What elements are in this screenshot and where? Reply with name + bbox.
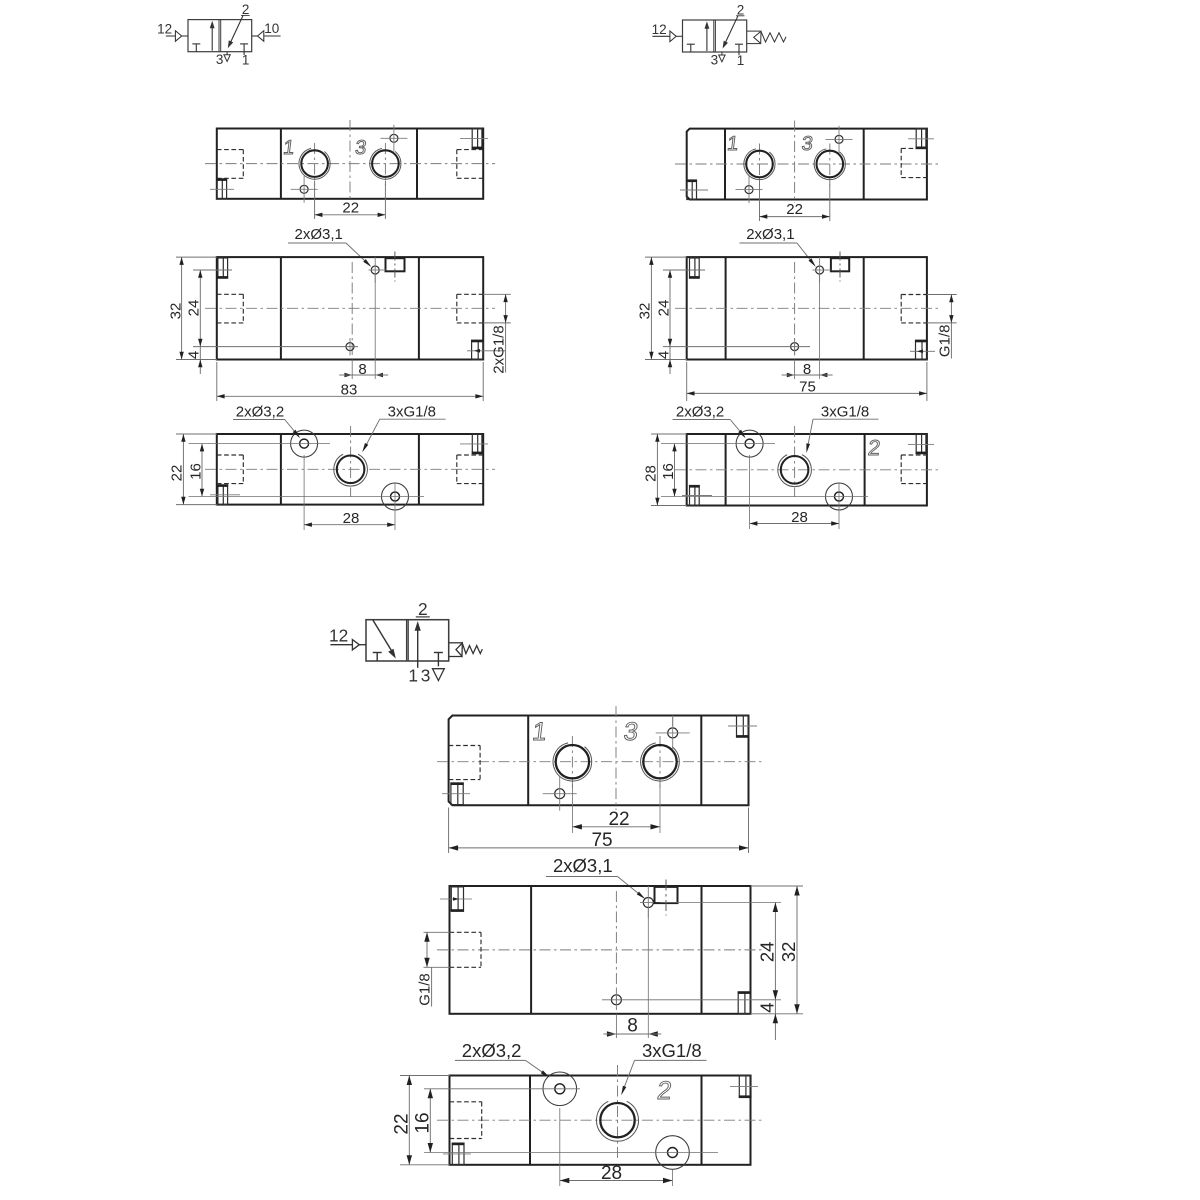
svg-text:22: 22 [342, 199, 359, 216]
svg-text:22: 22 [169, 465, 186, 482]
svg-text:2xØ3,1: 2xØ3,1 [295, 226, 343, 243]
svg-text:75: 75 [799, 379, 816, 396]
svg-text:22: 22 [608, 809, 629, 830]
svg-text:4: 4 [655, 351, 672, 359]
svg-text:2: 2 [418, 599, 428, 619]
svg-text:2xØ3,2: 2xØ3,2 [676, 404, 724, 421]
svg-text:24: 24 [186, 300, 203, 317]
svg-text:2xØ3,1: 2xØ3,1 [746, 226, 794, 243]
svg-text:8: 8 [358, 361, 366, 378]
svg-text:32: 32 [778, 942, 799, 963]
svg-text:2xØ3,2: 2xØ3,2 [462, 1040, 522, 1061]
svg-text:28: 28 [791, 509, 808, 526]
svg-text:32: 32 [168, 303, 185, 320]
svg-text:8: 8 [803, 361, 811, 378]
svg-text:G1/8: G1/8 [936, 325, 953, 358]
svg-text:24: 24 [757, 942, 778, 963]
svg-text:28: 28 [343, 510, 360, 527]
svg-text:16: 16 [660, 463, 677, 480]
svg-text:G1/8: G1/8 [417, 973, 434, 1006]
svg-text:1: 1 [737, 53, 745, 68]
svg-text:4: 4 [757, 1002, 778, 1012]
svg-text:2: 2 [737, 3, 745, 18]
svg-text:2xØ3,2: 2xØ3,2 [236, 404, 284, 421]
svg-text:3xG1/8: 3xG1/8 [642, 1040, 702, 1061]
svg-text:1: 1 [408, 666, 418, 686]
svg-text:32: 32 [637, 303, 654, 320]
svg-text:22: 22 [392, 1113, 413, 1134]
svg-text:3: 3 [711, 53, 719, 68]
svg-text:10: 10 [264, 21, 279, 36]
svg-text:16: 16 [187, 463, 204, 480]
svg-text:3: 3 [421, 666, 431, 686]
svg-text:16: 16 [413, 1112, 434, 1133]
svg-text:2xØ3,1: 2xØ3,1 [553, 855, 613, 876]
svg-text:22: 22 [786, 201, 803, 218]
svg-text:4: 4 [186, 351, 203, 359]
svg-text:28: 28 [601, 1163, 622, 1184]
svg-text:3xG1/8: 3xG1/8 [388, 404, 436, 421]
svg-text:83: 83 [341, 382, 358, 399]
svg-text:3xG1/8: 3xG1/8 [821, 404, 869, 421]
svg-text:12: 12 [652, 22, 667, 37]
svg-text:12: 12 [157, 22, 172, 37]
svg-text:2: 2 [242, 2, 250, 17]
svg-text:24: 24 [655, 300, 672, 317]
svg-text:3: 3 [216, 52, 224, 67]
svg-text:1: 1 [242, 53, 250, 68]
svg-text:8: 8 [627, 1016, 638, 1037]
svg-text:28: 28 [643, 465, 660, 482]
svg-text:2xG1/8: 2xG1/8 [491, 325, 508, 373]
svg-text:12: 12 [329, 626, 348, 646]
svg-text:75: 75 [591, 830, 612, 851]
